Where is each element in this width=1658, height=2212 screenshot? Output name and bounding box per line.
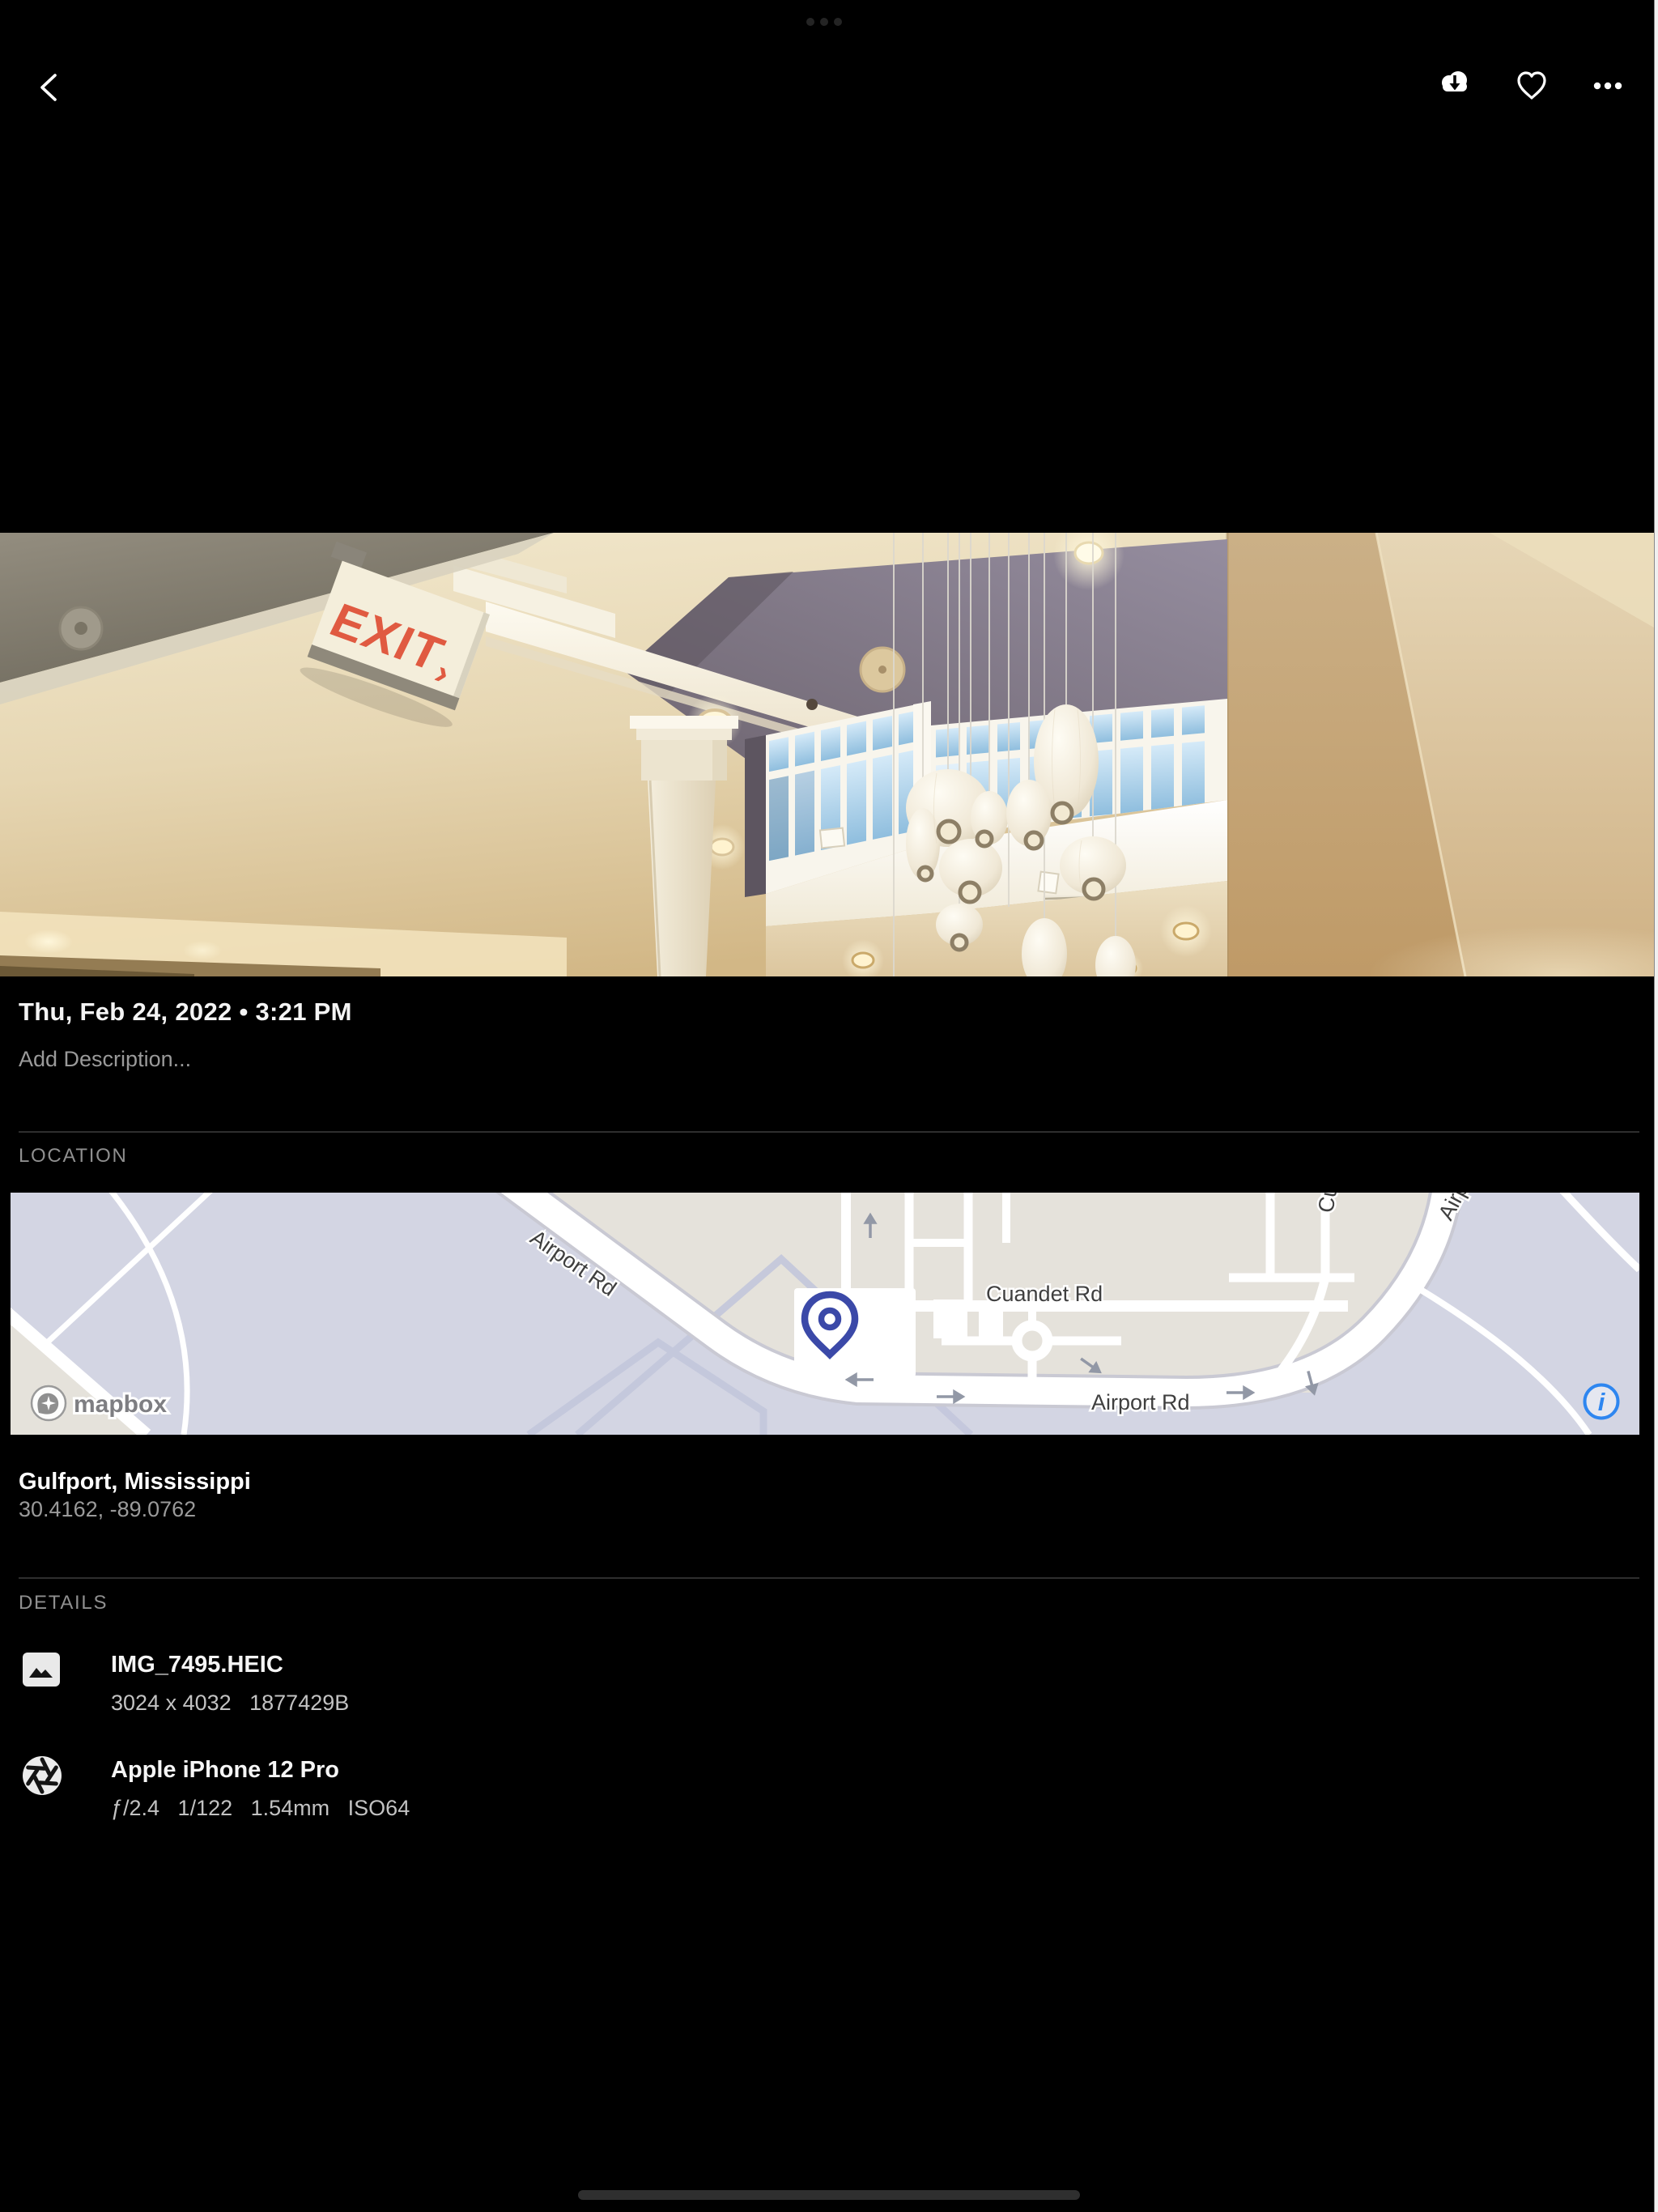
info-glyph: i bbox=[1598, 1388, 1606, 1416]
photo-image: EXIT › bbox=[0, 533, 1658, 976]
aperture-icon bbox=[20, 1754, 64, 1802]
map-label-cuandet-rd: Cuandet Rd bbox=[986, 1282, 1103, 1306]
camera-info-row: Apple iPhone 12 Pro ƒ/2.4 1/122 1.54mm I… bbox=[111, 1757, 410, 1821]
location-map[interactable]: Airport Rd Cuandet Rd Airport Rd Airport… bbox=[11, 1193, 1639, 1435]
map-info-button[interactable]: i bbox=[1585, 1385, 1618, 1419]
screen: { "status_bar": { "multitask_indicator_i… bbox=[0, 0, 1658, 2212]
map-label-airport-rd-horizontal: Airport Rd bbox=[1091, 1390, 1190, 1414]
chevron-left-icon bbox=[32, 68, 71, 107]
home-indicator[interactable] bbox=[578, 2190, 1080, 2200]
favorite-button[interactable] bbox=[1512, 66, 1551, 105]
ellipsis-icon bbox=[1588, 66, 1627, 105]
location-place: Gulfport, Mississippi bbox=[19, 1469, 251, 1495]
heart-icon bbox=[1512, 66, 1551, 105]
download-button[interactable] bbox=[1435, 66, 1474, 105]
mapbox-wordmark: mapbox bbox=[74, 1391, 167, 1418]
file-info-row: IMG_7495.HEIC 3024 x 4032 1877429B bbox=[111, 1652, 349, 1716]
multitask-indicator-icon[interactable] bbox=[806, 18, 842, 26]
photo-right-column bbox=[1227, 533, 1658, 976]
mapbox-logo[interactable]: mapbox bbox=[32, 1386, 168, 1420]
right-scrollbar[interactable] bbox=[1654, 0, 1658, 2212]
location-coordinates: 30.4162, -89.0762 bbox=[19, 1497, 196, 1522]
file-name: IMG_7495.HEIC bbox=[111, 1652, 349, 1678]
cloud-download-icon bbox=[1435, 66, 1474, 105]
file-meta: 3024 x 4032 1877429B bbox=[111, 1691, 349, 1716]
details-section-label: DETAILS bbox=[19, 1592, 108, 1614]
description-input[interactable]: Add Description... bbox=[19, 1047, 191, 1072]
divider bbox=[19, 1131, 1639, 1133]
photo-date: Thu, Feb 24, 2022 • 3:21 PM bbox=[19, 998, 352, 1027]
camera-model: Apple iPhone 12 Pro bbox=[111, 1757, 410, 1784]
more-menu-button[interactable] bbox=[1588, 66, 1627, 105]
location-section-label: LOCATION bbox=[19, 1145, 128, 1168]
back-button[interactable] bbox=[32, 68, 71, 107]
photo-viewer[interactable]: EXIT › bbox=[0, 533, 1658, 976]
map-canvas: Airport Rd Cuandet Rd Airport Rd Airport… bbox=[11, 1193, 1639, 1435]
image-file-icon bbox=[22, 1652, 61, 1691]
camera-exif: ƒ/2.4 1/122 1.54mm ISO64 bbox=[111, 1796, 410, 1821]
divider bbox=[19, 1577, 1639, 1579]
